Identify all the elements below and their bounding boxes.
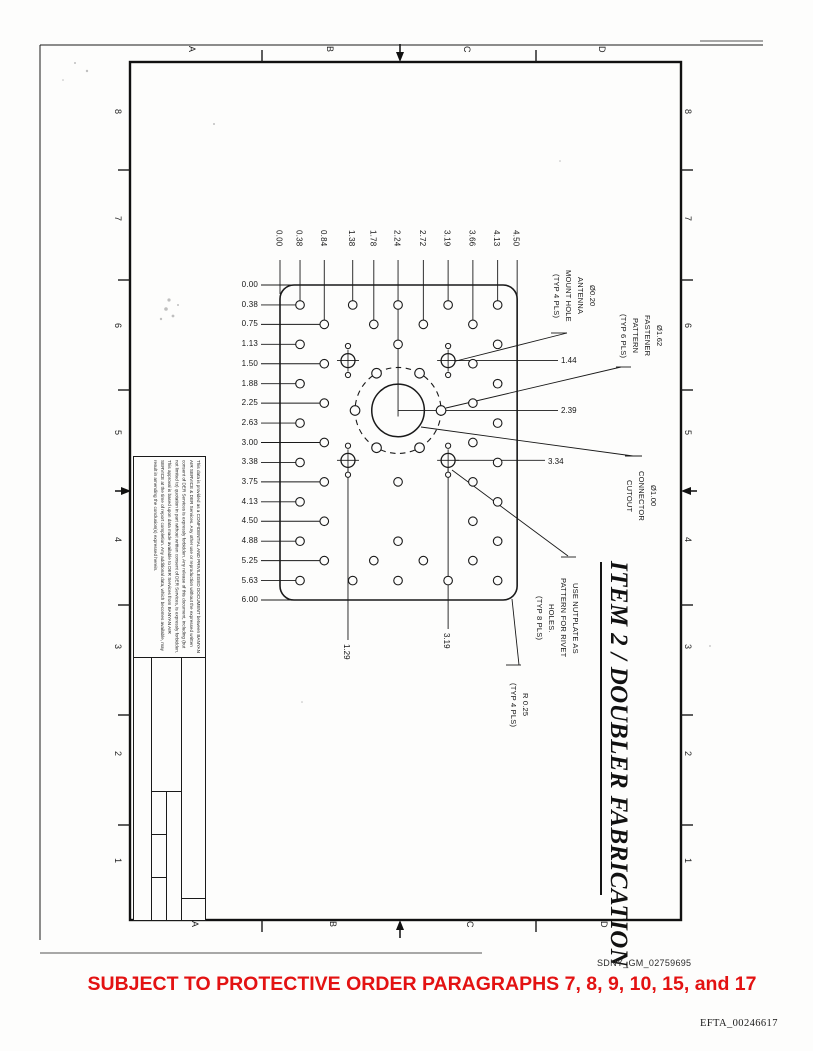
- dim-1-44: 1.44: [561, 356, 577, 365]
- protective-order-stamp: SUBJECT TO PROTECTIVE ORDER PARAGRAPHS 7…: [82, 973, 762, 996]
- col-ordinate-2.24: 2.24: [393, 230, 402, 258]
- scan-speckle: [62, 79, 64, 81]
- bates-number-efta: EFTA_00246617: [700, 1018, 778, 1029]
- confidentiality-text: This data is provided as a CONFIDENTIAL …: [134, 457, 205, 657]
- fastener-hole: [372, 368, 382, 378]
- rivet-hole: [493, 340, 502, 349]
- zone-number-right-5: 5: [683, 430, 693, 444]
- rivet-hole: [469, 556, 478, 565]
- row-ordinate-2.63: 2.63: [224, 418, 258, 427]
- row-ordinate-4.13: 4.13: [224, 497, 258, 506]
- scan-speckle: [559, 160, 561, 162]
- item-title: ITEM 2 / DOUBLER FABRICATION: [604, 561, 632, 897]
- zone-number-right-1: 1: [683, 858, 693, 872]
- scan-speckle: [213, 123, 215, 125]
- leader-corner: [512, 599, 519, 665]
- dim-2-39: 2.39: [561, 406, 577, 415]
- row-ordinate-4.88: 4.88: [224, 536, 258, 545]
- rivet-hole: [320, 320, 329, 329]
- col-ordinate-1.38: 1.38: [347, 230, 356, 258]
- nutplate-rivet-hole: [446, 472, 451, 477]
- zone-letter-bottom-B: B: [328, 921, 338, 935]
- rivet-hole: [348, 576, 357, 585]
- center-arrow-bottom: [396, 920, 404, 930]
- zone-number-left-5: 5: [113, 430, 123, 444]
- rivet-hole: [394, 340, 403, 349]
- scan-speckle: [160, 318, 162, 320]
- row-ordinate-5.63: 5.63: [224, 576, 258, 585]
- rivet-hole: [493, 576, 502, 585]
- nutplate-rivet-hole: [345, 372, 350, 377]
- zone-number-right-4: 4: [683, 537, 693, 551]
- rivet-hole: [394, 301, 403, 310]
- col-ordinate-4.13: 4.13: [492, 230, 501, 258]
- rivet-hole: [370, 556, 379, 565]
- zone-number-right-8: 8: [683, 109, 693, 123]
- scan-speckle: [164, 307, 168, 311]
- rivet-hole: [493, 379, 502, 388]
- nutplate-rivet-hole: [446, 372, 451, 377]
- zone-number-left-3: 3: [113, 644, 123, 658]
- rivet-hole: [320, 438, 329, 447]
- row-ordinate-3.00: 3.00: [224, 438, 258, 447]
- callout-connector-cutout: Ø1.00 CONNECTOR CUTOUT: [617, 460, 659, 532]
- row-ordinate-3.75: 3.75: [224, 477, 258, 486]
- item-title-underline: [600, 562, 602, 895]
- callout-fastener-pattern: Ø1.62 FASTENER PATTERN (TYP 6 PLS): [611, 299, 665, 373]
- col-ordinate-0.38: 0.38: [295, 230, 304, 258]
- rivet-hole: [370, 320, 379, 329]
- bates-number-sdny: SDNY_GM_02759695: [597, 958, 691, 968]
- scan-speckle: [74, 62, 76, 64]
- dwg-no-cell: DWG NO 2006-173-1: [182, 658, 205, 898]
- rivet-hole: [419, 556, 428, 565]
- rivet-hole: [320, 399, 329, 408]
- col-ordinate-0.84: 0.84: [319, 230, 328, 258]
- title-block: This data is provided as a CONFIDENTIAL …: [133, 456, 206, 921]
- row-ordinate-3.38: 3.38: [224, 457, 258, 466]
- row-ordinate-4.50: 4.50: [224, 516, 258, 525]
- serial-cell: SERIAL No. 20115: [134, 658, 152, 920]
- rivet-hole: [469, 399, 478, 408]
- sheet-cell: SHEET 3 OF 3: [152, 878, 167, 920]
- zone-number-right-3: 3: [683, 644, 693, 658]
- scan-speckle: [709, 645, 711, 647]
- zone-number-right-6: 6: [683, 323, 693, 337]
- callout-antenna-mount-hole: Ø0.20 ANTENNA MOUNT HOLE (TYP 4 PLS): [544, 254, 598, 338]
- scale-cell: SCALE 0.5 = 1: [152, 835, 167, 878]
- col-ordinate-2.72: 2.72: [418, 230, 427, 258]
- rivet-hole: [469, 478, 478, 487]
- rivet-hole: [493, 301, 502, 310]
- zone-letter-bottom-C: C: [465, 921, 475, 935]
- zone-number-left-8: 8: [113, 109, 123, 123]
- rivet-hole: [296, 576, 305, 585]
- rivet-hole: [296, 379, 305, 388]
- fastener-hole: [415, 443, 425, 453]
- rivet-hole: [444, 301, 453, 310]
- rivet-hole: [469, 517, 478, 526]
- zone-letter-top-C: C: [462, 46, 472, 60]
- scan-speckle: [167, 298, 170, 301]
- rivet-hole: [493, 498, 502, 507]
- fastener-hole: [415, 368, 425, 378]
- rivet-hole: [469, 320, 478, 329]
- row-ordinate-2.25: 2.25: [224, 398, 258, 407]
- drawing-frame: [130, 62, 681, 920]
- rivet-hole: [394, 576, 403, 585]
- row-ordinate-1.50: 1.50: [224, 359, 258, 368]
- center-arrow-right: [681, 487, 691, 495]
- zone-number-right-2: 2: [683, 751, 693, 765]
- rivet-hole: [320, 556, 329, 565]
- fastener-hole: [436, 406, 446, 416]
- zone-letter-top-B: B: [325, 46, 335, 60]
- zone-letter-top-D: D: [597, 46, 607, 60]
- dim-1-29: 1.29: [342, 644, 351, 672]
- scanned-drawing-page: AABBCCDD88776655443322110.000.380.841.38…: [0, 0, 813, 1051]
- company-cell: DER SERVICES 2300 N.W. 62nd STREET, Suit…: [152, 658, 182, 792]
- row-ordinate-0.00: 0.00: [224, 280, 258, 289]
- col-ordinate-1.78: 1.78: [368, 230, 377, 258]
- confidentiality-cell: This data is provided as a CONFIDENTIAL …: [134, 457, 205, 658]
- rivet-hole: [444, 576, 453, 585]
- nutplate-rivet-hole: [446, 343, 451, 348]
- row-ordinate-0.38: 0.38: [224, 300, 258, 309]
- scan-speckle: [86, 70, 88, 72]
- zone-number-left-1: 1: [113, 858, 123, 872]
- rivet-hole: [296, 419, 305, 428]
- rivet-hole: [394, 478, 403, 487]
- drawing-graphics: [0, 0, 813, 1051]
- rivet-hole: [296, 301, 305, 310]
- rivet-hole: [348, 301, 357, 310]
- zone-number-right-7: 7: [683, 216, 693, 230]
- rivet-hole: [493, 458, 502, 467]
- rivet-hole: [296, 340, 305, 349]
- rivet-hole: [469, 438, 478, 447]
- callout-corner-radius: R 0.25 (TYP 4 PLS): [501, 663, 531, 747]
- scan-speckle: [177, 304, 179, 306]
- col-ordinate-0.00: 0.00: [275, 230, 284, 258]
- rivet-hole: [320, 478, 329, 487]
- rivet-hole: [493, 419, 502, 428]
- nutplate-rivet-hole: [345, 472, 350, 477]
- col-ordinate-3.66: 3.66: [467, 230, 476, 258]
- zone-number-left-2: 2: [113, 751, 123, 765]
- fastener-hole: [372, 443, 382, 453]
- zone-number-left-6: 6: [113, 323, 123, 337]
- rev-cell: REV I/R: [182, 898, 205, 920]
- rivet-hole: [296, 498, 305, 507]
- nutplate-rivet-hole: [446, 443, 451, 448]
- zone-letter-top-A: A: [187, 46, 197, 60]
- col-ordinate-3.19: 3.19: [443, 230, 452, 258]
- rivet-hole: [320, 359, 329, 368]
- drawn-by-cell: DRAWN BY: W.D.OLIVERI: [167, 792, 182, 920]
- nutplate-rivet-hole: [345, 343, 350, 348]
- dim-3-19: 3.19: [442, 633, 451, 661]
- row-ordinate-1.88: 1.88: [224, 379, 258, 388]
- rivet-hole: [296, 458, 305, 467]
- row-ordinate-0.75: 0.75: [224, 319, 258, 328]
- fastener-hole: [350, 406, 360, 416]
- row-ordinate-5.25: 5.25: [224, 556, 258, 565]
- dim-3-34: 3.34: [548, 457, 564, 466]
- rivet-hole: [394, 537, 403, 546]
- nutplate-rivet-hole: [345, 443, 350, 448]
- zone-number-left-7: 7: [113, 216, 123, 230]
- scan-speckle: [172, 315, 175, 318]
- zone-number-left-4: 4: [113, 537, 123, 551]
- row-ordinate-6.00: 6.00: [224, 595, 258, 604]
- rivet-hole: [469, 359, 478, 368]
- center-arrow-top: [396, 52, 404, 62]
- leader-connector: [421, 427, 633, 456]
- rivet-hole: [320, 517, 329, 526]
- row-ordinate-1.13: 1.13: [224, 339, 258, 348]
- rivet-hole: [296, 537, 305, 546]
- scan-speckle: [301, 701, 303, 703]
- rivet-hole: [493, 537, 502, 546]
- size-cell: SIZE B: [152, 792, 167, 835]
- rivet-hole: [419, 320, 428, 329]
- zone-letter-bottom-A: A: [190, 921, 200, 935]
- col-ordinate-4.50: 4.50: [512, 230, 521, 258]
- callout-nutplate-rivet: USE NUTPLATE AS PATTERN FOR RIVET HOLES.…: [531, 561, 581, 675]
